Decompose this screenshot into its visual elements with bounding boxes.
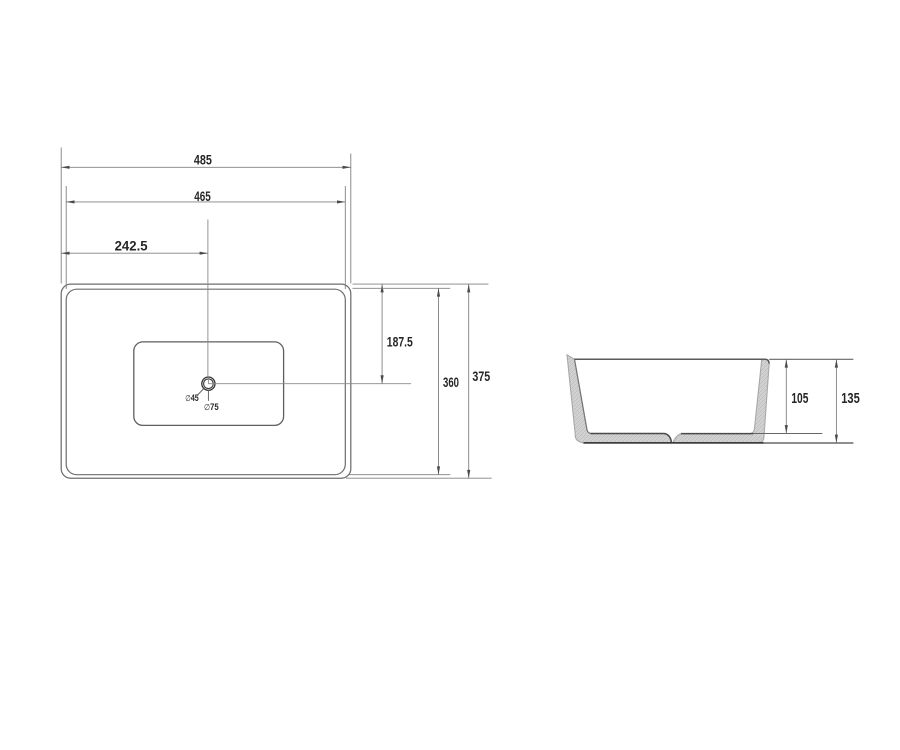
- svg-text:187.5: 187.5: [387, 334, 413, 349]
- svg-text:485: 485: [194, 153, 212, 168]
- svg-text:360: 360: [443, 375, 459, 390]
- svg-text:∅75: ∅75: [204, 402, 219, 413]
- svg-text:465: 465: [194, 189, 211, 204]
- svg-text:105: 105: [791, 390, 808, 407]
- svg-text:∅45: ∅45: [185, 393, 199, 404]
- svg-text:135: 135: [841, 390, 860, 407]
- svg-text:375: 375: [472, 369, 490, 384]
- svg-text:242.5: 242.5: [115, 238, 148, 253]
